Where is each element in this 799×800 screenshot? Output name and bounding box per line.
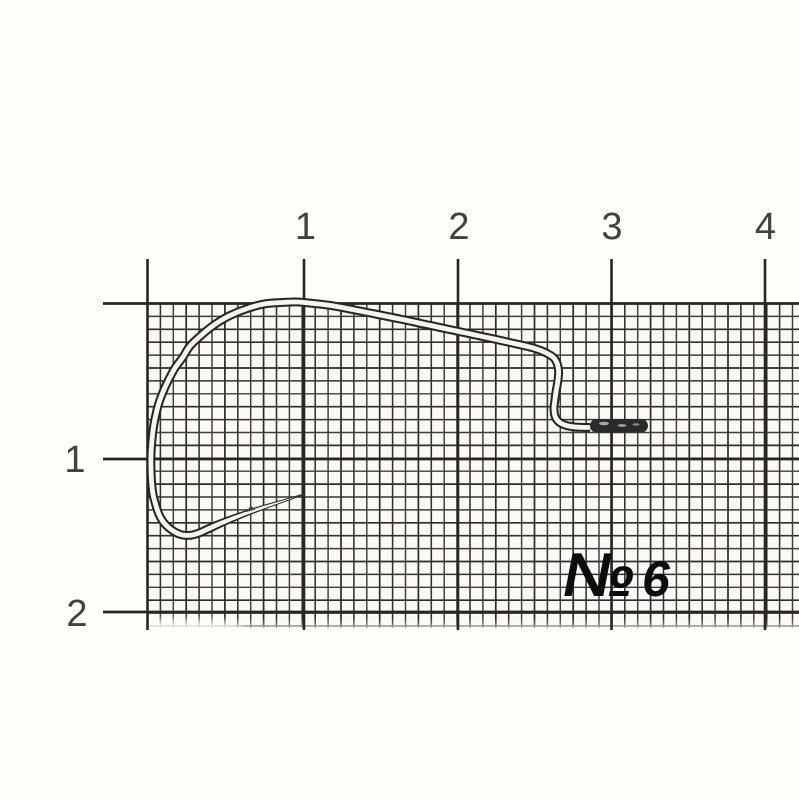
svg-text:2: 2 xyxy=(66,593,87,635)
svg-text:3: 3 xyxy=(601,206,622,248)
svg-text:2: 2 xyxy=(448,206,469,248)
svg-text:№: № xyxy=(563,541,634,610)
svg-text:4: 4 xyxy=(755,206,776,248)
svg-text:1: 1 xyxy=(295,206,316,248)
svg-text:6: 6 xyxy=(642,551,671,607)
svg-text:1: 1 xyxy=(64,439,85,481)
